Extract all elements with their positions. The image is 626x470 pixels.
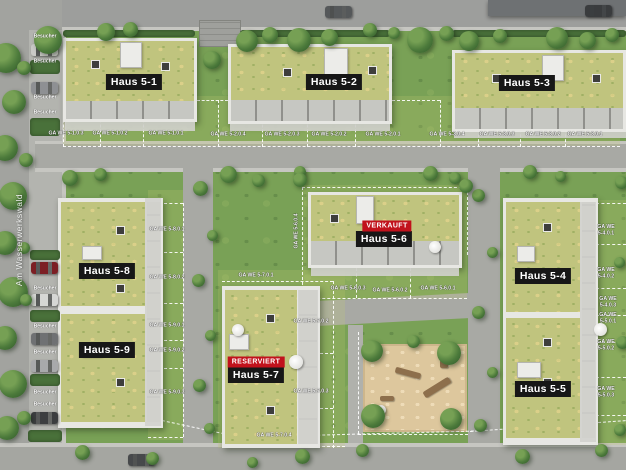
- parked-car: [31, 360, 58, 372]
- garden-unit-label: GA WE 5-3.0.3: [479, 131, 514, 137]
- tree: [440, 408, 462, 430]
- tree: [207, 230, 218, 241]
- tree: [472, 189, 485, 202]
- tree: [459, 31, 479, 51]
- roof-structure: [517, 362, 541, 378]
- visitor-parking-label: Besucher: [34, 33, 57, 39]
- carport: [199, 20, 241, 47]
- parked-car: [31, 412, 58, 424]
- garden-unit-label: GA WE 5-5.0.3: [597, 386, 616, 398]
- building-label-haus-5-6[interactable]: Haus 5-6: [356, 231, 412, 247]
- tree: [123, 22, 138, 37]
- tree: [321, 29, 338, 46]
- tree: [439, 26, 454, 41]
- tree: [361, 340, 383, 362]
- building-label-haus-5-9[interactable]: Haus 5-9: [79, 342, 135, 358]
- hedge: [30, 250, 60, 260]
- tree: [493, 29, 507, 43]
- garden-unit-label: GA WE 5-7.0.2: [293, 318, 328, 324]
- roof-structure: [120, 42, 142, 68]
- garden-unit-label: GA WE 5-1.0.2: [92, 130, 127, 136]
- roof-vent: [330, 214, 339, 223]
- tree: [293, 173, 307, 187]
- parked-car: [31, 82, 58, 94]
- street-name-label: Am Wasserwerkswald: [14, 194, 24, 286]
- terrace: [311, 268, 459, 276]
- building-label-haus-5-3[interactable]: Haus 5-3: [499, 75, 555, 91]
- garden-unit-label: GA WE 5-6.0.2: [372, 287, 407, 293]
- tree: [252, 174, 265, 187]
- hedge: [30, 310, 60, 322]
- visitor-parking-label: Besucher: [34, 58, 57, 64]
- tree: [295, 449, 310, 464]
- tree: [407, 27, 433, 53]
- green-roof: [61, 314, 145, 422]
- garden-unit-label: GA WE 5-2.0.1: [365, 131, 400, 137]
- roof-vent: [116, 284, 125, 293]
- tree: [19, 153, 33, 167]
- garden-unit-label: GA WE 5-7.0.4: [256, 432, 291, 438]
- tree: [203, 51, 221, 69]
- roof-vent: [266, 314, 275, 323]
- building-haus-5-3[interactable]: [452, 50, 626, 132]
- hedge: [30, 374, 60, 386]
- roof-vent: [266, 406, 275, 415]
- roof-vent: [283, 68, 292, 77]
- garden-unit-label: GA WE 5-5.0.2: [597, 339, 616, 351]
- tree: [192, 274, 205, 287]
- roof-vent: [116, 226, 125, 235]
- facade: [231, 100, 389, 121]
- tree: [363, 23, 377, 37]
- tree: [388, 27, 400, 39]
- roof-vent: [543, 223, 552, 232]
- tree: [407, 335, 420, 348]
- roof-structure: [229, 334, 249, 350]
- parked-car: [31, 294, 58, 306]
- tree: [205, 330, 216, 341]
- tree: [523, 165, 537, 179]
- roof-vent: [368, 66, 377, 75]
- tree: [515, 449, 530, 464]
- hedge: [28, 430, 62, 442]
- parked-car: [325, 6, 352, 18]
- tree: [94, 168, 107, 181]
- garden-unit-label: GA WE 5-2.0.2: [311, 131, 346, 137]
- road-bottom: [0, 447, 626, 470]
- garden-unit-label: GA WE 5-7.0.3: [293, 388, 328, 394]
- tree: [605, 28, 619, 42]
- garden-unit-label: GA WE 5-5.0.1: [599, 312, 618, 324]
- tree: [247, 457, 258, 468]
- status-badge-reserviert[interactable]: RESERVIERT: [228, 357, 285, 368]
- tree: [97, 23, 115, 41]
- tree: [0, 370, 27, 398]
- garden-unit-label: GA WE 5-3.0.2: [525, 131, 560, 137]
- tree: [193, 379, 206, 392]
- garden-unit-label: GA WE 5-2.0.4: [210, 131, 245, 137]
- garden-unit-label: GA WE 5-4.0.2: [597, 267, 616, 279]
- tree: [423, 166, 438, 181]
- tree: [262, 27, 278, 43]
- visitor-parking-label: Besucher: [34, 323, 57, 329]
- parked-car: [585, 5, 612, 17]
- tree: [555, 171, 566, 182]
- tree: [204, 423, 215, 434]
- parasol: [232, 324, 244, 336]
- roof-vent: [161, 62, 170, 71]
- tree: [236, 30, 258, 52]
- path-playground-west: [348, 325, 363, 448]
- garden-unit-label: GA WE 5-9.0.3: [149, 389, 184, 395]
- road-middle: [35, 144, 626, 169]
- tree: [546, 27, 568, 49]
- roof-vent: [91, 60, 100, 69]
- tree: [615, 176, 626, 189]
- parked-car: [31, 333, 58, 345]
- facade: [66, 101, 194, 119]
- tree: [579, 32, 596, 49]
- roof-structure: [517, 246, 535, 262]
- garden-unit-label: GA WE 5-9.0.2: [149, 347, 184, 353]
- garden-unit-label: GA WE 5-9.0.1: [149, 322, 184, 328]
- visitor-parking-label: Besucher: [34, 389, 57, 395]
- tree: [487, 247, 498, 258]
- garden-unit-label: GA WE 5-7.0.1: [238, 272, 273, 278]
- parasol: [594, 323, 607, 336]
- garden-unit-label: GA WE 5-4.0.3: [599, 296, 618, 308]
- tree: [459, 179, 473, 193]
- building-label-haus-5-7[interactable]: Haus 5-7: [228, 367, 284, 383]
- visitor-parking-label: Besucher: [34, 285, 57, 291]
- roof-vent: [543, 338, 552, 347]
- garden-unit-label: GA WE 5-6.0.1: [420, 285, 455, 291]
- tree: [17, 61, 31, 75]
- garden-unit-label: GA WE 5-8.0.1: [149, 226, 184, 232]
- tree: [487, 367, 498, 378]
- garden-unit-label: GA WE 5-4.0.1: [597, 224, 616, 236]
- tree: [472, 306, 485, 319]
- garden-unit-label: GA WE 5-1.0.1: [148, 130, 183, 136]
- tree: [146, 452, 159, 465]
- tree: [20, 294, 32, 306]
- tree: [2, 90, 26, 114]
- tree: [437, 341, 461, 365]
- garden-unit-label: GA WE 5-1.0.3: [48, 130, 83, 136]
- tree: [34, 26, 62, 54]
- garden-unit-label: GA WE 5-6.0.3: [330, 285, 365, 291]
- roof-structure: [82, 246, 102, 260]
- tree: [474, 419, 487, 432]
- terrace: [298, 290, 318, 444]
- tree: [62, 170, 78, 186]
- garden-unit-label: GA WE 5-2.0.3: [264, 131, 299, 137]
- roof-vent: [116, 378, 125, 387]
- building-label-haus-5-5[interactable]: Haus 5-5: [515, 381, 571, 397]
- status-badge-verkauft[interactable]: VERKAUFT: [362, 221, 411, 232]
- building-label-haus-5-4[interactable]: Haus 5-4: [515, 268, 571, 284]
- garden-unit-label: GA WE 5-8.0.2: [149, 274, 184, 280]
- building-label-haus-5-8[interactable]: Haus 5-8: [79, 263, 135, 279]
- site-plan: Haus 5-1 Haus 5-2 Haus 5-3 Haus 5-4 Haus…: [0, 0, 626, 470]
- visitor-parking-label: Besucher: [34, 401, 57, 407]
- garden-unit-label: GA WE 5-6.0.4: [293, 213, 299, 248]
- plot-boundary-line: [358, 434, 468, 435]
- tree: [220, 166, 237, 183]
- sidewalk-middle-bottom: [35, 168, 626, 172]
- tree: [614, 424, 626, 436]
- tree: [616, 336, 626, 349]
- tree: [595, 444, 608, 457]
- tree: [356, 444, 369, 457]
- parasol: [289, 355, 303, 369]
- terrace: [230, 124, 390, 131]
- road-central: [183, 168, 213, 448]
- garden-unit-label: GA WE 5-3.0.1: [567, 131, 602, 137]
- tree: [287, 28, 311, 52]
- building-label-haus-5-1[interactable]: Haus 5-1: [106, 74, 162, 90]
- facade: [455, 108, 623, 129]
- visitor-parking-label: Besucher: [34, 109, 57, 115]
- roof-vent: [592, 74, 601, 83]
- tree: [75, 445, 90, 460]
- visitor-parking-label: Besucher: [34, 349, 57, 355]
- tree: [193, 181, 208, 196]
- tree: [614, 257, 625, 268]
- parked-car: [31, 262, 58, 274]
- terrace: [580, 202, 596, 442]
- tree: [361, 404, 385, 428]
- tree: [17, 411, 31, 425]
- garden-unit-label: GA WE 5-3.0.4: [429, 131, 464, 137]
- building-label-haus-5-2[interactable]: Haus 5-2: [306, 74, 362, 90]
- visitor-parking-label: Besucher: [34, 94, 57, 100]
- play-equipment: [380, 396, 394, 401]
- green-roof: [61, 202, 145, 306]
- parasol: [429, 241, 441, 253]
